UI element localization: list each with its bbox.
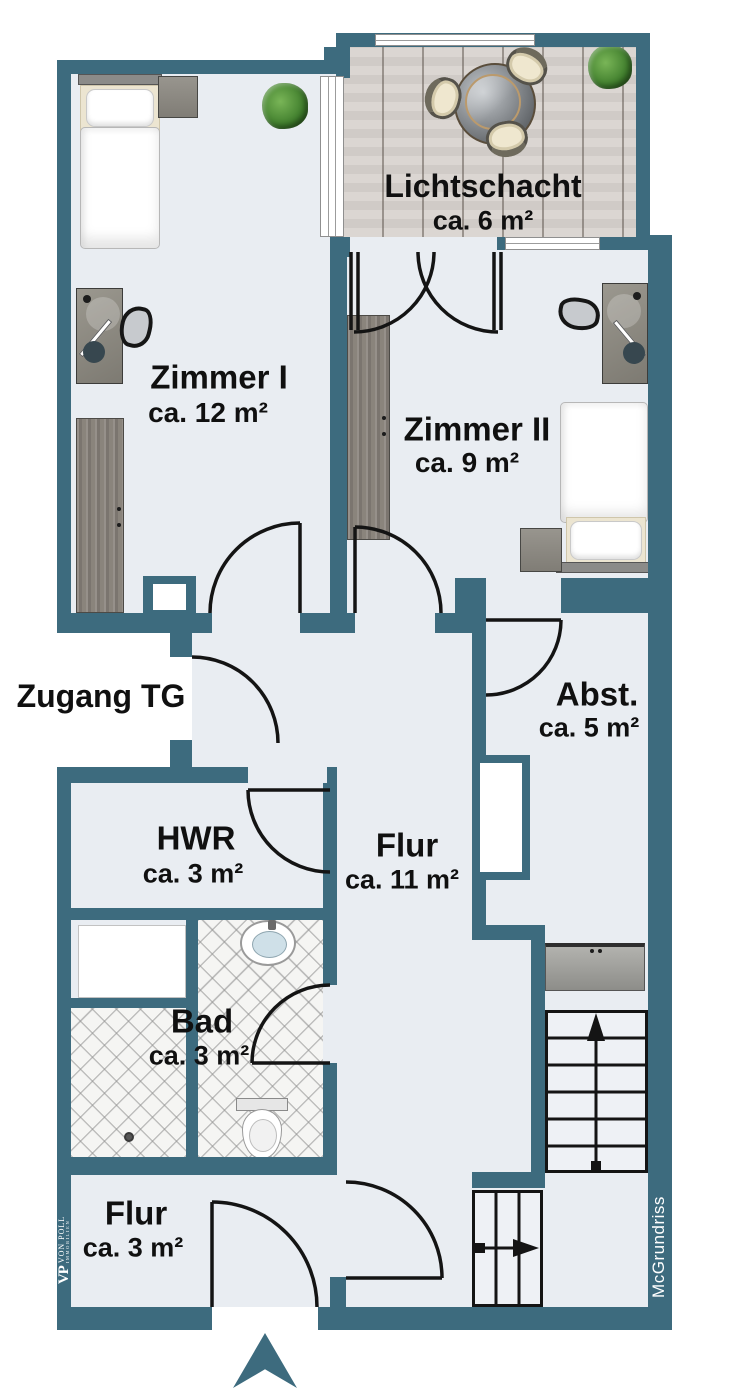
logo-sub: IMMOBILIEN — [66, 1220, 71, 1264]
room-label: Bad — [171, 1005, 233, 1038]
room-area: ca. 6 m² — [433, 208, 534, 235]
door-arc — [355, 527, 441, 613]
room-area: ca. 5 m² — [539, 715, 640, 742]
floorplan: Lichtschacht ca. 6 m² Zimmer I ca. 12 m²… — [0, 0, 730, 1389]
door-arc — [210, 523, 300, 613]
watermark: McGrundriss — [649, 1177, 669, 1317]
door-arc — [248, 790, 330, 872]
von-poll-logo: VP VON POLL IMMOBILIEN — [56, 1160, 72, 1340]
room-area: ca. 3 m² — [143, 861, 244, 888]
staircase-lower — [474, 1192, 542, 1306]
room-label: Flur — [376, 829, 438, 862]
stair-start-marker — [591, 1161, 601, 1171]
door-bad — [252, 985, 330, 1063]
room-area: ca. 3 m² — [83, 1235, 184, 1262]
room-label: Abst. — [556, 678, 639, 711]
room-label: HWR — [157, 822, 236, 855]
door-arc — [346, 1182, 442, 1278]
door-arc — [252, 985, 330, 1063]
room-area: ca. 9 m² — [415, 449, 519, 477]
door-entrance — [212, 1202, 317, 1307]
room-area: ca. 3 m² — [149, 1043, 250, 1070]
logo-monogram: VP — [56, 1266, 73, 1284]
door-stair-corridor — [346, 1182, 442, 1278]
room-label: Zimmer II — [404, 413, 551, 446]
stair-start-marker — [475, 1243, 485, 1253]
door-arc — [192, 657, 278, 743]
door-zimmer-1 — [210, 523, 300, 613]
room-label: Flur — [105, 1197, 167, 1230]
brand-col: VON POLL IMMOBILIEN — [58, 1216, 71, 1263]
room-area: ca. 11 m² — [345, 867, 459, 894]
door-zimmer-2 — [355, 527, 441, 613]
staircase-up — [547, 1012, 647, 1172]
door-arc — [486, 620, 561, 695]
room-label: Zimmer I — [150, 361, 288, 394]
door-hwr — [248, 790, 330, 872]
door-zugang-tg — [192, 657, 278, 743]
room-area: ca. 12 m² — [148, 399, 268, 427]
door-arc — [418, 252, 498, 332]
door-arc — [354, 252, 434, 332]
french-door-lichtschacht — [351, 252, 501, 332]
door-arc — [212, 1202, 317, 1307]
access-label: Zugang TG — [17, 680, 186, 712]
door-abstellraum — [486, 620, 561, 695]
room-label: Lichtschacht — [384, 170, 581, 202]
